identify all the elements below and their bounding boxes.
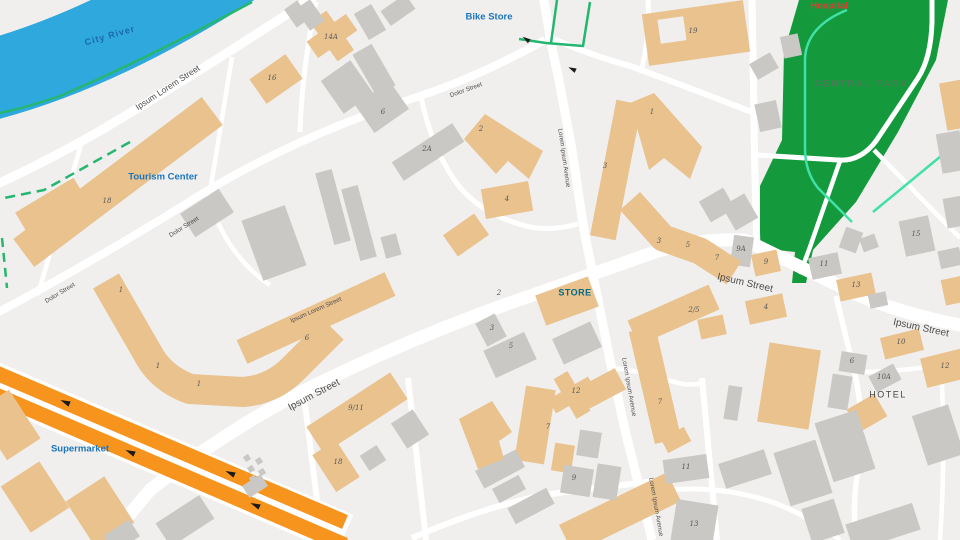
building-number: 5 <box>686 241 691 249</box>
building-number: 1 <box>650 108 654 116</box>
building-number: 11 <box>682 463 691 471</box>
building-number: 1 <box>119 286 123 294</box>
building-number: 2 <box>478 125 484 133</box>
building-courtyard <box>657 16 686 43</box>
building-number: 13 <box>852 281 861 289</box>
poi-label-supermarket[interactable]: Supermarket <box>51 444 110 455</box>
poi-label-store[interactable]: STORE <box>558 287 591 297</box>
building <box>560 465 594 497</box>
building-number: 2/5 <box>687 306 700 314</box>
building-number: 12 <box>572 387 581 395</box>
park-label: CENTRAL PARK <box>815 78 909 88</box>
poi-label-tourism-center[interactable]: Tourism Center <box>128 172 198 183</box>
building-number: 15 <box>912 230 921 238</box>
building-number: 12 <box>941 362 950 370</box>
building-number: 9A <box>736 245 746 253</box>
building-number: 6 <box>305 334 310 342</box>
building-number: 1 <box>197 380 201 388</box>
map-canvas[interactable]: 1614A1862A242351279189/11111631193579A91… <box>0 0 960 540</box>
poi-label-bike-store[interactable]: Bike Store <box>466 12 513 23</box>
building-number: 2 <box>496 289 502 297</box>
building-number: 1 <box>156 362 160 370</box>
building-number: 9/11 <box>348 404 364 412</box>
building-number: 10A <box>877 373 891 381</box>
building-number: 13 <box>690 520 699 528</box>
building-number: 3 <box>490 324 495 332</box>
building-number: 10 <box>897 338 906 346</box>
building-number: 6 <box>850 357 855 365</box>
building-number: 6 <box>381 108 386 116</box>
building-number: 5 <box>509 342 514 350</box>
building-number: 7 <box>546 423 551 431</box>
map-svg: 1614A1862A242351279189/11111631193579A91… <box>0 0 960 540</box>
poi-label-hospital[interactable]: Hospital <box>810 1 847 12</box>
building-number: 9 <box>572 474 577 482</box>
building-number: 18 <box>334 458 343 466</box>
building-number: 11 <box>820 260 829 268</box>
building-number: 4 <box>763 303 768 311</box>
building-number: 2A <box>421 145 432 153</box>
building-number: 4 <box>504 195 509 203</box>
poi-label-hotel[interactable]: HOTEL <box>869 389 907 399</box>
building-number: 3 <box>657 237 662 245</box>
building-number: 18 <box>103 197 112 205</box>
building-number: 3 <box>603 162 608 170</box>
building-number: 9 <box>764 258 769 266</box>
building-number: 14A <box>324 33 338 41</box>
building-number: 16 <box>268 74 277 82</box>
building-number: 7 <box>715 254 720 262</box>
building <box>576 429 602 458</box>
building-number: 19 <box>689 27 698 35</box>
building-number: 7 <box>658 398 663 406</box>
